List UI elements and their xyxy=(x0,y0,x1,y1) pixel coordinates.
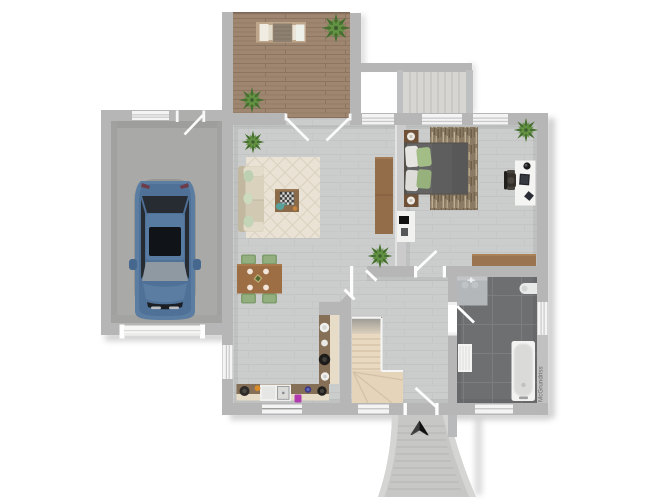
svg-text:McGrundriss: McGrundriss xyxy=(538,366,545,402)
